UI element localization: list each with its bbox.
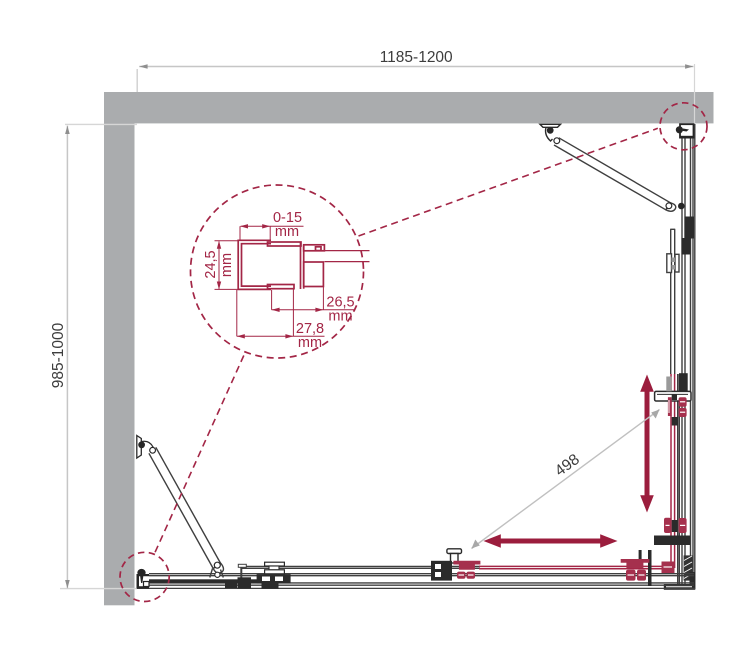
svg-text:mm: mm xyxy=(219,253,235,277)
svg-text:mm: mm xyxy=(275,224,299,240)
svg-text:mm: mm xyxy=(298,335,322,351)
svg-text:985-1000: 985-1000 xyxy=(50,322,67,388)
svg-text:1185-1200: 1185-1200 xyxy=(380,49,453,66)
svg-text:24,5: 24,5 xyxy=(203,250,219,278)
svg-text:mm: mm xyxy=(328,309,352,325)
